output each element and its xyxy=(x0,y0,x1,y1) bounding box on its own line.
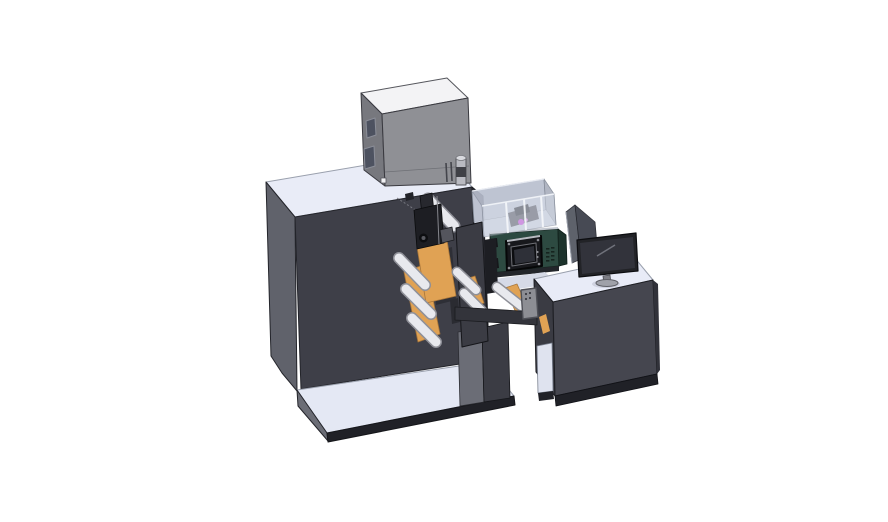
printer-box-slot xyxy=(446,163,447,182)
operator-desk xyxy=(534,257,660,406)
desk-kick-recess xyxy=(537,343,553,393)
hmi-screw xyxy=(538,263,541,266)
control-panel-right-end xyxy=(558,229,567,266)
remote-button xyxy=(525,293,527,295)
print-head-connector xyxy=(440,227,454,243)
printer-box-latch xyxy=(381,178,386,183)
side-frame-plate xyxy=(456,222,488,347)
knob-cylinder xyxy=(456,156,466,186)
monitor-screen xyxy=(580,237,635,274)
remote-button xyxy=(529,297,531,299)
cad-render xyxy=(0,0,888,522)
hmi-button xyxy=(536,256,538,258)
control-panel xyxy=(490,228,567,278)
remote-button xyxy=(529,292,531,294)
cabinet-left-face xyxy=(266,182,297,391)
print-head-body xyxy=(414,204,444,249)
print-head-hub-center xyxy=(422,236,426,240)
printer-box xyxy=(361,78,471,186)
knob-top xyxy=(456,156,466,161)
knob-band xyxy=(456,167,466,177)
monitor-base xyxy=(596,280,618,287)
hmi-panel xyxy=(506,236,542,271)
hmi-screw xyxy=(508,243,511,246)
hmi-button xyxy=(536,251,538,253)
cad-viewport xyxy=(0,0,888,522)
hmi-screw xyxy=(508,267,511,270)
remote-button xyxy=(525,298,527,300)
printer-box-slot xyxy=(451,162,452,181)
hmi-screw xyxy=(537,239,540,242)
handheld-remote xyxy=(521,288,538,319)
printer-box-window xyxy=(364,146,375,169)
printer-box-window xyxy=(366,118,376,138)
